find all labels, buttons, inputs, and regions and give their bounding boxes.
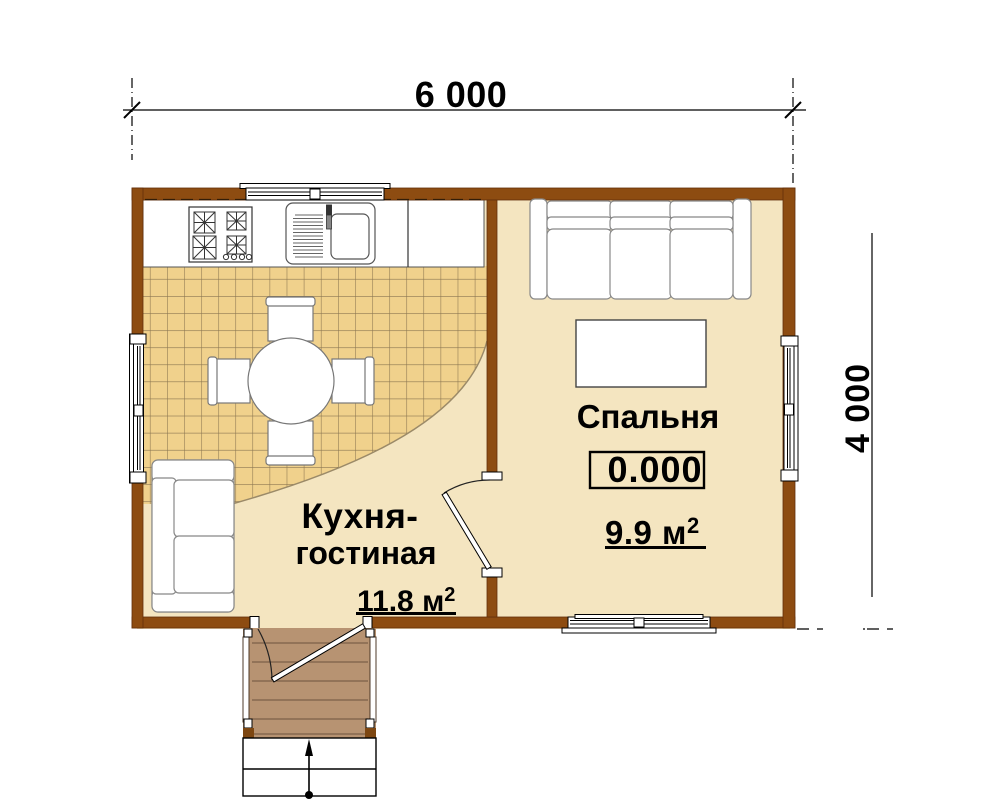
svg-text:0.000: 0.000 — [607, 449, 702, 490]
svg-text:9.9 м2: 9.9 м2 — [605, 513, 700, 551]
svg-text:6 000: 6 000 — [415, 74, 508, 115]
svg-text:Кухня-: Кухня- — [302, 497, 419, 536]
svg-text:4 000: 4 000 — [839, 363, 877, 453]
svg-text:Спальня: Спальня — [577, 398, 720, 435]
svg-text:гостиная: гостиная — [296, 535, 437, 571]
